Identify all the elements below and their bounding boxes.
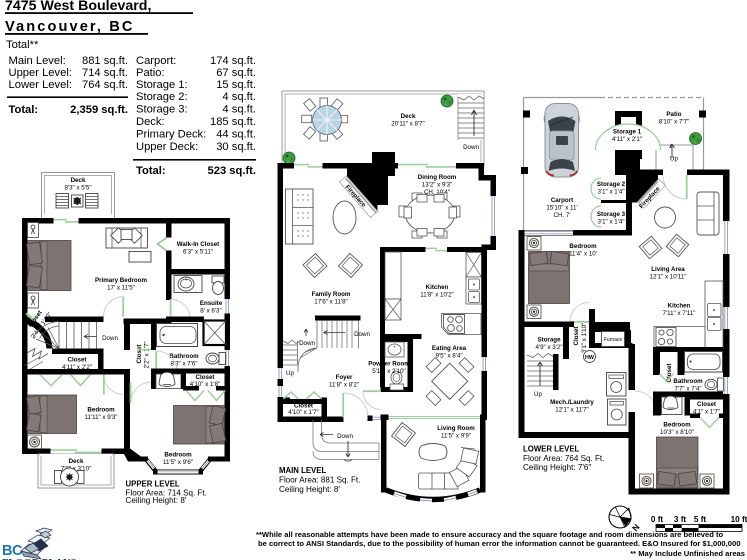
svg-text:Bedroom: Bedroom (87, 407, 115, 414)
svg-text:30 sq.ft.: 30 sq.ft. (216, 141, 256, 153)
svg-text:20'11" x 8'7": 20'11" x 8'7" (391, 120, 424, 127)
svg-text:12'1" x 11'7": 12'1" x 11'7" (555, 406, 588, 413)
svg-text:8'10" x 7'7": 8'10" x 7'7" (659, 118, 690, 125)
svg-text:Vancouver, BC: Vancouver, BC (5, 19, 135, 35)
svg-text:Upper Level:: Upper Level: (9, 67, 72, 79)
svg-text:8'3" x 5'5": 8'3" x 5'5" (64, 184, 91, 191)
svg-text:Ensuite: Ensuite (200, 300, 223, 307)
svg-text:4'10" x 1'8": 4'10" x 1'8" (190, 381, 221, 388)
svg-text:2,359 sq.ft.: 2,359 sq.ft. (70, 104, 128, 116)
svg-text:Closet: Closet (573, 327, 580, 346)
svg-text:Patio: Patio (666, 111, 681, 118)
svg-text:Furnace: Furnace (604, 337, 623, 343)
svg-text:Dining Room: Dining Room (418, 174, 457, 181)
svg-text:Up: Up (534, 391, 542, 398)
svg-text:2'2" x 1'7": 2'2" x 1'7" (144, 341, 151, 368)
svg-text:Deck:: Deck: (136, 116, 165, 128)
svg-text:Bedroom: Bedroom (569, 243, 597, 250)
svg-text:Total**: Total** (6, 39, 39, 51)
svg-text:Storage 1:: Storage 1: (136, 79, 188, 91)
svg-text:Powder Room: Powder Room (368, 361, 410, 368)
svg-text:881 sq.ft.: 881 sq.ft. (82, 55, 128, 67)
svg-text:Primary Deck:: Primary Deck: (136, 129, 206, 141)
svg-text:Storage 2:: Storage 2: (136, 91, 188, 103)
svg-text:4 sq.ft.: 4 sq.ft. (222, 91, 256, 103)
svg-text:Ceiling Height: 8': Ceiling Height: 8' (126, 496, 187, 505)
svg-text:Storage 2: Storage 2 (597, 181, 626, 188)
svg-text:Down: Down (354, 331, 370, 338)
svg-text:Down: Down (102, 335, 118, 342)
svg-text:Carport: Carport (551, 197, 573, 204)
svg-text:Walk-In Closet: Walk-In Closet (177, 241, 219, 248)
svg-text:7'7" x 7'4": 7'7" x 7'4" (674, 385, 701, 392)
svg-text:Deck: Deck (401, 113, 416, 120)
svg-text:10'3" x 8'10": 10'3" x 8'10" (660, 429, 694, 436)
svg-text:4'9" x 3'2": 4'9" x 3'2" (535, 344, 562, 351)
svg-text:Total:: Total: (136, 165, 166, 177)
svg-text:11'8" x 10'2": 11'8" x 10'2" (420, 291, 453, 298)
svg-text:Living Area: Living Area (651, 266, 685, 273)
svg-text:Floor Area: 881 Sq. Ft.: Floor Area: 881 Sq. Ft. (279, 476, 360, 485)
svg-text:Total:: Total: (9, 104, 39, 116)
svg-text:Up: Up (286, 370, 294, 377)
svg-text:Storage 1: Storage 1 (613, 129, 642, 136)
svg-text:CH. 7': CH. 7' (554, 212, 571, 219)
svg-text:LOWER LEVEL: LOWER LEVEL (523, 445, 580, 454)
svg-text:** May Include Unfinished area: ** May Include Unfinished areas (630, 549, 745, 558)
svg-text:Up: Up (670, 156, 678, 163)
svg-text:Patio:: Patio: (136, 67, 165, 79)
svg-text:Lower Level:: Lower Level: (9, 79, 72, 91)
svg-text:174 sq.ft.: 174 sq.ft. (210, 55, 256, 67)
svg-text:Down: Down (463, 144, 479, 151)
svg-text:Kitchen: Kitchen (426, 284, 449, 291)
svg-text:764 sq.ft.: 764 sq.ft. (82, 79, 128, 91)
svg-text:11'4" x 10': 11'4" x 10' (569, 250, 597, 257)
svg-text:3'1" x 1'10": 3'1" x 1'10" (581, 323, 588, 354)
svg-text:4 sq.ft.: 4 sq.ft. (222, 104, 256, 116)
svg-text:Living Room: Living Room (437, 425, 475, 432)
svg-text:15 sq.ft.: 15 sq.ft. (216, 79, 256, 91)
svg-text:Main Level:: Main Level: (9, 55, 66, 67)
svg-text:15'10" x 11': 15'10" x 11' (546, 204, 577, 211)
svg-text:Down: Down (337, 433, 353, 440)
svg-text:523 sq.ft.: 523 sq.ft. (208, 165, 257, 177)
svg-text:**While all reasonable attempt: **While all reasonable attempts have bee… (256, 530, 724, 539)
svg-text:Deck: Deck (71, 177, 86, 184)
svg-text:17' x 11'5": 17' x 11'5" (107, 284, 135, 291)
svg-text:17'6" x 11'8": 17'6" x 11'8" (314, 298, 347, 305)
svg-text:Deck: Deck (69, 458, 84, 465)
svg-text:7'11" x 7'11": 7'11" x 7'11" (662, 310, 695, 317)
svg-text:Ceiling Height: 7'6": Ceiling Height: 7'6" (523, 463, 591, 472)
svg-text:4'1" x 1'7": 4'1" x 1'7" (693, 408, 720, 415)
svg-text:Bedroom: Bedroom (164, 452, 192, 459)
svg-text:Bedroom: Bedroom (663, 422, 691, 429)
svg-text:44 sq.ft.: 44 sq.ft. (216, 129, 256, 141)
svg-text:Primary Bedroom: Primary Bedroom (95, 277, 147, 284)
svg-text:5'11" x 2'10": 5'11" x 2'10" (372, 368, 405, 375)
svg-text:Floor Area: 764 Sq. Ft.: Floor Area: 764 Sq. Ft. (523, 454, 604, 463)
svg-text:3'1" x 1'4": 3'1" x 1'4" (597, 218, 624, 225)
svg-text:UPPER LEVEL: UPPER LEVEL (126, 480, 180, 489)
svg-text:3 ft: 3 ft (674, 515, 687, 524)
svg-text:Closet: Closet (68, 357, 87, 364)
svg-text:Family Room: Family Room (312, 291, 351, 298)
svg-text:3'1" x 1'4": 3'1" x 1'4" (597, 188, 624, 195)
svg-text:Storage: Storage (537, 337, 561, 344)
svg-text:Foyer: Foyer (336, 374, 353, 381)
svg-text:11'8" x 8'2": 11'8" x 8'2" (329, 381, 359, 388)
svg-text:11'5" x 9'6": 11'5" x 9'6" (163, 459, 193, 466)
svg-text:MAIN LEVEL: MAIN LEVEL (279, 466, 326, 475)
svg-text:12'1" x 10'11": 12'1" x 10'11" (650, 273, 687, 280)
svg-text:67 sq.ft.: 67 sq.ft. (216, 67, 256, 79)
svg-text:11'11" x 9'3": 11'11" x 9'3" (84, 414, 117, 421)
svg-text:9'5" x 8'4": 9'5" x 8'4" (435, 352, 462, 359)
svg-text:0 ft: 0 ft (651, 515, 664, 524)
svg-text:Bathroom: Bathroom (673, 378, 703, 385)
svg-text:4'10" x 1'7": 4'10" x 1'7" (288, 409, 319, 416)
svg-text:Down: Down (299, 340, 315, 347)
svg-text:Eating Area: Eating Area (432, 345, 467, 352)
svg-text:Closet: Closet (697, 401, 716, 408)
svg-text:185 sq.ft.: 185 sq.ft. (210, 116, 256, 128)
svg-text:7475 West Boulevard,: 7475 West Boulevard, (5, 0, 151, 14)
svg-text:HW: HW (585, 355, 595, 361)
svg-text:11'5" x 9'9": 11'5" x 9'9" (441, 432, 471, 439)
svg-text:Closet: Closet (666, 364, 673, 383)
svg-text:Storage 3:: Storage 3: (136, 104, 188, 116)
svg-text:Storage 3: Storage 3 (597, 211, 626, 218)
svg-text:be correct to ANSI Standards,: be correct to ANSI Standards, due to the… (258, 539, 740, 548)
svg-text:714 sq.ft.: 714 sq.ft. (82, 67, 128, 79)
svg-text:4'11" x 2'1": 4'11" x 2'1" (612, 136, 642, 143)
svg-text:13'2" x 9'3": 13'2" x 9'3" (422, 181, 453, 188)
svg-text:Carport:: Carport: (136, 55, 176, 67)
svg-text:6'3" x 5'11": 6'3" x 5'11" (183, 248, 213, 255)
svg-text:Ceiling Height: 8': Ceiling Height: 8' (279, 485, 340, 494)
svg-text:Upper Deck:: Upper Deck: (136, 141, 198, 153)
svg-text:Kitchen: Kitchen (668, 303, 691, 310)
svg-text:Bathroom: Bathroom (169, 353, 199, 360)
svg-text:Closet: Closet (136, 345, 143, 364)
svg-text:10 ft: 10 ft (731, 515, 747, 524)
svg-text:5 ft: 5 ft (694, 515, 707, 524)
svg-text:8' x 6'3": 8' x 6'3" (200, 307, 221, 314)
svg-text:Mech./Laundry: Mech./Laundry (550, 399, 594, 406)
svg-text:BC: BC (2, 543, 23, 559)
